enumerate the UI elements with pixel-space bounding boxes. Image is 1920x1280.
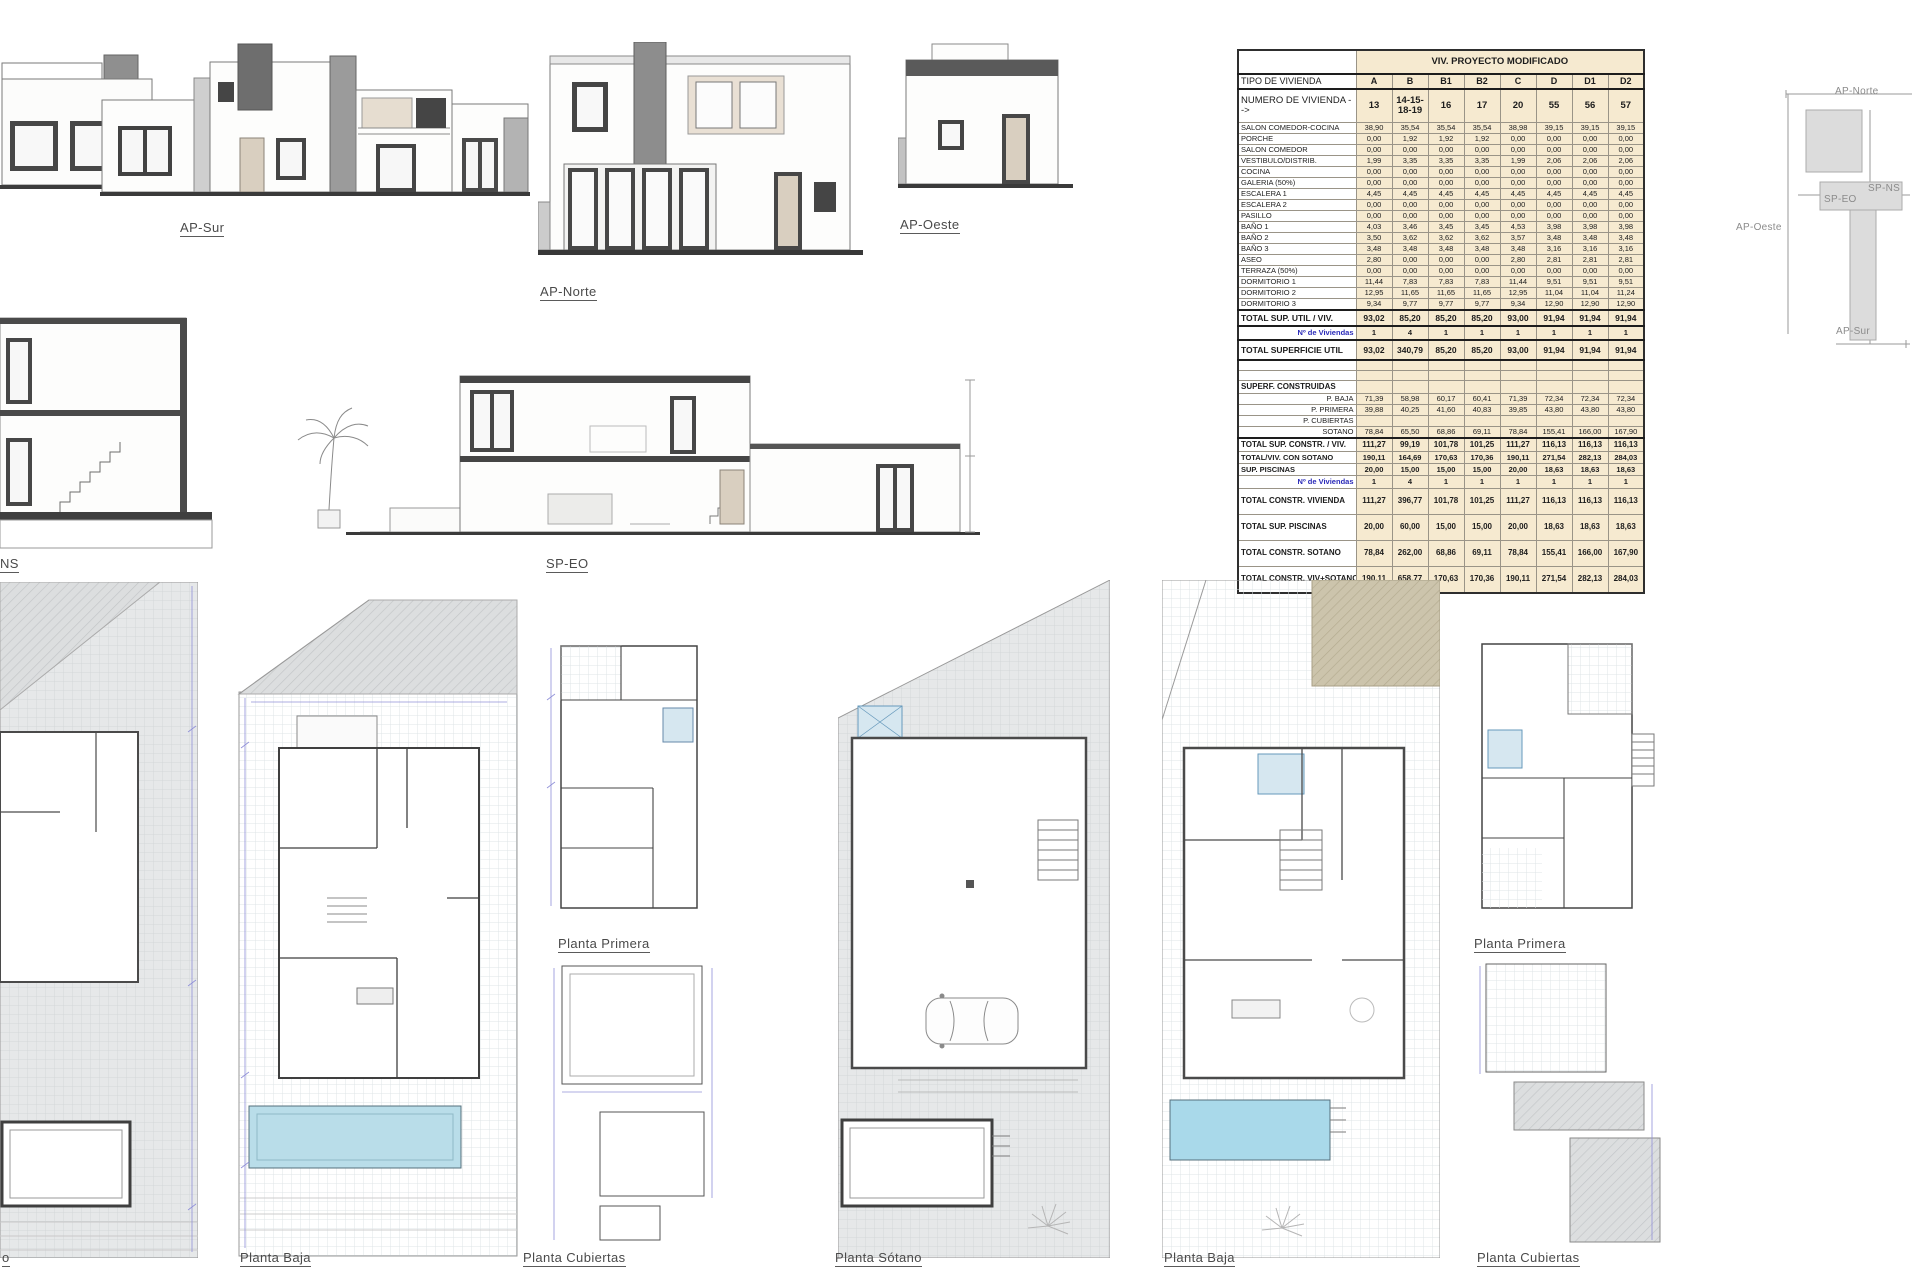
- ap-oeste-elevation-drawing: [898, 42, 1073, 214]
- table-cell: [1356, 360, 1392, 371]
- construida-value: 60,17: [1428, 394, 1464, 405]
- table-row: P. CUBIERTAS: [1238, 416, 1644, 427]
- n-viviendas-value: 1: [1500, 476, 1536, 489]
- construida-value: 72,34: [1536, 394, 1572, 405]
- n-viviendas-value: 4: [1392, 326, 1428, 340]
- table-cell: [1428, 360, 1464, 371]
- total-viv-con-sotano-value: 190,11: [1356, 452, 1392, 464]
- table-row: VIV. PROYECTO MODIFICADO: [1238, 50, 1644, 74]
- area-value: 2,06: [1536, 156, 1572, 167]
- area-value: 2,81: [1572, 255, 1608, 266]
- grand-total-value: 166,00: [1572, 541, 1608, 567]
- area-value: 11,65: [1428, 288, 1464, 299]
- area-value: 0,00: [1392, 145, 1428, 156]
- area-value: 0,00: [1572, 200, 1608, 211]
- construida-value: 40,25: [1392, 405, 1428, 416]
- area-value: 3,48: [1356, 244, 1392, 255]
- sp-ns-section-drawing: [0, 298, 232, 560]
- area-value: 3,48: [1464, 244, 1500, 255]
- construida-row-label: P. PRIMERA: [1238, 405, 1356, 416]
- room-label: DORMITORIO 2: [1238, 288, 1356, 299]
- planta-sotano-right-drawing: [838, 580, 1110, 1258]
- ap-sur-elevation-drawing: [100, 42, 530, 204]
- grand-total-value: 20,00: [1356, 515, 1392, 541]
- table-row: TOTAL SUP. UTIL / VIV.93,0285,2085,2085,…: [1238, 310, 1644, 326]
- grand-total-value: 262,00: [1392, 541, 1428, 567]
- construida-value: [1464, 416, 1500, 427]
- numero-cell: 13: [1356, 89, 1392, 123]
- area-value: 0,00: [1356, 134, 1392, 145]
- area-value: 0,00: [1608, 134, 1644, 145]
- construida-value: 78,84: [1356, 427, 1392, 439]
- total-util-viv-value: 91,94: [1608, 310, 1644, 326]
- grand-total-value: 282,13: [1572, 567, 1608, 594]
- total-superficie-util-value: 85,20: [1428, 340, 1464, 360]
- area-value: 3,48: [1428, 244, 1464, 255]
- planta-sotano-right-label: Planta Sótano: [835, 1250, 922, 1267]
- grand-total-value: 116,13: [1608, 489, 1644, 515]
- area-value: 7,83: [1464, 277, 1500, 288]
- table-row: SALON COMEDOR0,000,000,000,000,000,000,0…: [1238, 145, 1644, 156]
- area-value: 3,48: [1608, 233, 1644, 244]
- tipo-cell: C: [1500, 74, 1536, 89]
- grand-total-value: 20,00: [1500, 515, 1536, 541]
- area-value: 12,90: [1608, 299, 1644, 311]
- table-row: [1238, 371, 1644, 381]
- area-value: 11,44: [1356, 277, 1392, 288]
- construida-row-label: P. CUBIERTAS: [1238, 416, 1356, 427]
- table-cell: [1356, 371, 1392, 381]
- area-value: 2,81: [1608, 255, 1644, 266]
- grand-total-value: 116,13: [1536, 489, 1572, 515]
- area-value: 11,04: [1572, 288, 1608, 299]
- planta-cubiertas-right-drawing: [1478, 962, 1666, 1246]
- grand-total-value: 60,00: [1392, 515, 1428, 541]
- area-value: 9,51: [1572, 277, 1608, 288]
- construida-value: 166,00: [1572, 427, 1608, 439]
- area-value: 2,06: [1608, 156, 1644, 167]
- construida-value: 43,80: [1536, 405, 1572, 416]
- table-cell: [1608, 371, 1644, 381]
- area-value: 2,80: [1500, 255, 1536, 266]
- room-label: SALON COMEDOR-COCINA: [1238, 123, 1356, 134]
- tipo-cell: B: [1392, 74, 1428, 89]
- construida-value: [1500, 416, 1536, 427]
- total-constr-viv-value: 111,27: [1500, 438, 1536, 452]
- ap-sur-label: AP-Sur: [180, 220, 224, 237]
- table-row: SOTANO78,8465,5068,8669,1178,84155,41166…: [1238, 427, 1644, 439]
- n-viviendas-value: 1: [1428, 326, 1464, 340]
- numero-cell: 57: [1608, 89, 1644, 123]
- area-value: 2,81: [1536, 255, 1572, 266]
- table-row: VESTIBULO/DISTRIB.1,993,353,353,351,992,…: [1238, 156, 1644, 167]
- table-cell: [1464, 371, 1500, 381]
- table-cell: [1608, 381, 1644, 394]
- table-cell: [1464, 381, 1500, 394]
- area-value: 9,77: [1464, 299, 1500, 311]
- planta-cubiertas-left-drawing: [548, 962, 726, 1246]
- sup-piscinas-value: 15,00: [1428, 464, 1464, 476]
- key-sp-ns-label: SP-NS: [1868, 183, 1900, 194]
- construida-value: 71,39: [1356, 394, 1392, 405]
- area-value: 3,50: [1356, 233, 1392, 244]
- total-superficie-util-value: 93,02: [1356, 340, 1392, 360]
- sp-eo-label: SP-EO: [546, 556, 588, 573]
- room-label: ESCALERA 2: [1238, 200, 1356, 211]
- table-row: DORMITORIO 39,349,779,779,779,3412,9012,…: [1238, 299, 1644, 311]
- grand-total-label: TOTAL CONSTR. VIVIENDA: [1238, 489, 1356, 515]
- total-superficie-util-value: 93,00: [1500, 340, 1536, 360]
- room-label: BAÑO 2: [1238, 233, 1356, 244]
- construida-value: [1356, 416, 1392, 427]
- tipo-vivienda-label: TIPO DE VIVIENDA: [1238, 74, 1356, 89]
- area-value: 0,00: [1392, 178, 1428, 189]
- area-value: 3,98: [1572, 222, 1608, 233]
- total-constr-viv-value: 116,13: [1536, 438, 1572, 452]
- construida-value: 41,60: [1428, 405, 1464, 416]
- n-viviendas-value: 1: [1464, 476, 1500, 489]
- room-label: SALON COMEDOR: [1238, 145, 1356, 156]
- area-value: 12,90: [1572, 299, 1608, 311]
- table-cell: [1536, 360, 1572, 371]
- area-value: 0,00: [1464, 167, 1500, 178]
- room-label: COCINA: [1238, 167, 1356, 178]
- grand-total-value: 78,84: [1500, 541, 1536, 567]
- area-value: 3,57: [1500, 233, 1536, 244]
- area-value: 0,00: [1464, 178, 1500, 189]
- area-value: 0,00: [1392, 266, 1428, 277]
- sup-piscinas-value: 18,63: [1608, 464, 1644, 476]
- table-row: PASILLO0,000,000,000,000,000,000,000,00: [1238, 211, 1644, 222]
- area-value: 9,34: [1500, 299, 1536, 311]
- grand-total-value: 170,36: [1464, 567, 1500, 594]
- total-constr-viv-value: 116,13: [1608, 438, 1644, 452]
- area-value: 4,45: [1428, 189, 1464, 200]
- area-value: 9,34: [1356, 299, 1392, 311]
- room-label: DORMITORIO 3: [1238, 299, 1356, 311]
- viv-proyecto-modificado-table: VIV. PROYECTO MODIFICADOTIPO DE VIVIENDA…: [1237, 49, 1645, 594]
- area-value: 0,00: [1464, 200, 1500, 211]
- planta-baja-right-label: Planta Baja: [1164, 1250, 1235, 1267]
- area-value: 3,48: [1572, 233, 1608, 244]
- sup-piscinas-value: 15,00: [1392, 464, 1428, 476]
- area-value: 0,00: [1608, 145, 1644, 156]
- area-value: 0,00: [1356, 266, 1392, 277]
- construida-value: 58,98: [1392, 394, 1428, 405]
- table-row: GALERIA (50%)0,000,000,000,000,000,000,0…: [1238, 178, 1644, 189]
- total-util-viv-value: 85,20: [1392, 310, 1428, 326]
- area-value: 0,00: [1536, 134, 1572, 145]
- total-superficie-util-value: 91,94: [1572, 340, 1608, 360]
- grand-total-value: 18,63: [1608, 515, 1644, 541]
- key-ap-sur-label: AP-Sur: [1836, 326, 1870, 337]
- grand-total-value: 155,41: [1536, 541, 1572, 567]
- tipo-cell: D: [1536, 74, 1572, 89]
- area-value: 38,98: [1500, 123, 1536, 134]
- construida-value: 65,50: [1392, 427, 1428, 439]
- table-row: TOTAL SUP. PISCINAS20,0060,0015,0015,002…: [1238, 515, 1644, 541]
- table-cell: [1428, 371, 1464, 381]
- ap-norte-elevation-drawing: [538, 42, 863, 282]
- area-value: 9,51: [1536, 277, 1572, 288]
- table-row: TOTAL SUP. CONSTR. / VIV.111,2799,19101,…: [1238, 438, 1644, 452]
- area-value: 0,00: [1572, 145, 1608, 156]
- area-value: 0,00: [1428, 211, 1464, 222]
- construida-value: 60,41: [1464, 394, 1500, 405]
- area-value: 12,90: [1536, 299, 1572, 311]
- planta-baja-left-label: Planta Baja: [240, 1250, 311, 1267]
- tipo-cell: A: [1356, 74, 1392, 89]
- area-value: 3,46: [1392, 222, 1428, 233]
- total-util-viv-value: 91,94: [1572, 310, 1608, 326]
- grand-total-value: 167,90: [1608, 541, 1644, 567]
- construida-value: 39,85: [1500, 405, 1536, 416]
- table-cell: [1608, 360, 1644, 371]
- area-value: 0,00: [1428, 266, 1464, 277]
- construida-value: 68,86: [1428, 427, 1464, 439]
- area-value: 0,00: [1500, 145, 1536, 156]
- plan-sotano-left-partial-drawing: [0, 582, 198, 1258]
- area-value: 39,15: [1608, 123, 1644, 134]
- total-viv-con-sotano-label: TOTAL/VIV. CON SOTANO: [1238, 452, 1356, 464]
- construida-row-label: SOTANO: [1238, 427, 1356, 439]
- total-superficie-util-value: 91,94: [1608, 340, 1644, 360]
- table-cell: [1356, 381, 1392, 394]
- ap-oeste-label: AP-Oeste: [900, 217, 960, 234]
- area-value: 3,48: [1392, 244, 1428, 255]
- area-value: 38,90: [1356, 123, 1392, 134]
- n-viviendas-value: 1: [1356, 326, 1392, 340]
- table-row: TIPO DE VIVIENDAABB1B2CDD1D2: [1238, 74, 1644, 89]
- table-row: ESCALERA 20,000,000,000,000,000,000,000,…: [1238, 200, 1644, 211]
- planta-primera-right-drawing: [1472, 638, 1660, 933]
- construida-value: 39,88: [1356, 405, 1392, 416]
- numero-cell: 14-15-18-19: [1392, 89, 1428, 123]
- area-value: 0,00: [1572, 266, 1608, 277]
- construida-value: 40,83: [1464, 405, 1500, 416]
- area-value: 0,00: [1572, 167, 1608, 178]
- area-value: 35,54: [1392, 123, 1428, 134]
- area-value: 0,00: [1392, 167, 1428, 178]
- area-value: 0,00: [1464, 211, 1500, 222]
- area-value: 4,45: [1392, 189, 1428, 200]
- sup-piscinas-value: 20,00: [1500, 464, 1536, 476]
- table-cell: [1238, 360, 1356, 371]
- tipo-cell: B2: [1464, 74, 1500, 89]
- grand-total-value: 78,84: [1356, 541, 1392, 567]
- total-constr-viv-value: 101,78: [1428, 438, 1464, 452]
- n-viviendas-value: 1: [1464, 326, 1500, 340]
- key-sp-eo-label: SP-EO: [1824, 194, 1857, 205]
- grand-total-value: 284,03: [1608, 567, 1644, 594]
- area-value: 0,00: [1356, 167, 1392, 178]
- grand-total-value: 111,27: [1500, 489, 1536, 515]
- room-label: PASILLO: [1238, 211, 1356, 222]
- area-value: 11,24: [1608, 288, 1644, 299]
- sup-piscinas-value: 20,00: [1356, 464, 1392, 476]
- area-value: 4,45: [1536, 189, 1572, 200]
- table-row: ASEO2,800,000,000,002,802,812,812,81: [1238, 255, 1644, 266]
- area-value: 0,00: [1536, 200, 1572, 211]
- planta-primera-left-label: Planta Primera: [558, 936, 650, 953]
- area-value: 9,51: [1608, 277, 1644, 288]
- grand-total-value: 69,11: [1464, 541, 1500, 567]
- superf-construidas-label: SUPERF. CONSTRUIDAS: [1238, 381, 1356, 394]
- table-row: SUPERF. CONSTRUIDAS: [1238, 381, 1644, 394]
- table-corner: [1238, 50, 1356, 74]
- area-value: 9,77: [1392, 299, 1428, 311]
- area-value: 0,00: [1464, 266, 1500, 277]
- planta-cubiertas-left-label: Planta Cubiertas: [523, 1250, 626, 1267]
- n-viviendas-value: 1: [1536, 326, 1572, 340]
- area-value: 2,06: [1572, 156, 1608, 167]
- table-cell: [1238, 371, 1356, 381]
- planta-cubiertas-right-label: Planta Cubiertas: [1477, 1250, 1580, 1267]
- grand-total-value: 190,11: [1500, 567, 1536, 594]
- planta-primera-left-drawing: [543, 638, 715, 933]
- area-value: 7,83: [1428, 277, 1464, 288]
- area-value: 0,00: [1464, 145, 1500, 156]
- room-label: VESTIBULO/DISTRIB.: [1238, 156, 1356, 167]
- area-value: 3,35: [1428, 156, 1464, 167]
- total-constr-viv-value: 116,13: [1572, 438, 1608, 452]
- sup-piscinas-value: 15,00: [1464, 464, 1500, 476]
- area-value: 3,45: [1464, 222, 1500, 233]
- area-value: 0,00: [1356, 145, 1392, 156]
- key-ap-oeste-label: AP-Oeste: [1736, 222, 1782, 233]
- area-value: 0,00: [1392, 200, 1428, 211]
- total-superficie-util-value: 85,20: [1464, 340, 1500, 360]
- numero-cell: 16: [1428, 89, 1464, 123]
- table-row: BAÑO 14,033,463,453,454,533,983,983,98: [1238, 222, 1644, 233]
- table-title: VIV. PROYECTO MODIFICADO: [1356, 50, 1644, 74]
- table-row: BAÑO 23,503,623,623,623,573,483,483,48: [1238, 233, 1644, 244]
- table-row: BAÑO 33,483,483,483,483,483,163,163,16: [1238, 244, 1644, 255]
- table-row: TOTAL SUPERFICIE UTIL93,02340,7985,2085,…: [1238, 340, 1644, 360]
- grand-total-label: TOTAL SUP. PISCINAS: [1238, 515, 1356, 541]
- area-value: 3,45: [1428, 222, 1464, 233]
- area-value: 35,54: [1464, 123, 1500, 134]
- grand-total-label: TOTAL CONSTR. SOTANO: [1238, 541, 1356, 567]
- area-value: 0,00: [1392, 211, 1428, 222]
- grand-total-value: 271,54: [1536, 567, 1572, 594]
- area-value: 0,00: [1428, 200, 1464, 211]
- tipo-cell: D2: [1608, 74, 1644, 89]
- room-label: ESCALERA 1: [1238, 189, 1356, 200]
- total-viv-con-sotano-value: 190,11: [1500, 452, 1536, 464]
- table-row: DORMITORIO 111,447,837,837,8311,449,519,…: [1238, 277, 1644, 288]
- area-value: 4,53: [1500, 222, 1536, 233]
- room-label: DORMITORIO 1: [1238, 277, 1356, 288]
- grand-total-value: 111,27: [1356, 489, 1392, 515]
- area-value: 0,00: [1428, 167, 1464, 178]
- area-value: 35,54: [1428, 123, 1464, 134]
- table-cell: [1572, 360, 1608, 371]
- area-value: 0,00: [1572, 134, 1608, 145]
- table-row: ESCALERA 14,454,454,454,454,454,454,454,…: [1238, 189, 1644, 200]
- table-row: P. PRIMERA39,8840,2541,6040,8339,8543,80…: [1238, 405, 1644, 416]
- area-value: 4,45: [1356, 189, 1392, 200]
- area-value: 1,92: [1428, 134, 1464, 145]
- n-viviendas-value: 1: [1608, 476, 1644, 489]
- table-row: DORMITORIO 212,9511,6511,6511,6512,9511,…: [1238, 288, 1644, 299]
- total-viv-con-sotano-value: 284,03: [1608, 452, 1644, 464]
- grand-total-value: 101,78: [1428, 489, 1464, 515]
- area-value: 0,00: [1356, 211, 1392, 222]
- area-value: 0,00: [1608, 211, 1644, 222]
- area-value: 0,00: [1428, 255, 1464, 266]
- table-row: SALON COMEDOR-COCINA38,9035,5435,5435,54…: [1238, 123, 1644, 134]
- area-value: 3,16: [1608, 244, 1644, 255]
- construida-value: 71,39: [1500, 394, 1536, 405]
- n-viviendas-value: 1: [1572, 476, 1608, 489]
- total-util-viv-value: 93,02: [1356, 310, 1392, 326]
- total-superficie-util-value: 340,79: [1392, 340, 1428, 360]
- construida-value: 72,34: [1572, 394, 1608, 405]
- grand-total-value: 15,00: [1428, 515, 1464, 541]
- area-value: 3,62: [1392, 233, 1428, 244]
- table-cell: [1500, 360, 1536, 371]
- area-value: 3,62: [1428, 233, 1464, 244]
- area-value: 12,95: [1500, 288, 1536, 299]
- area-value: 1,92: [1392, 134, 1428, 145]
- area-value: 0,00: [1464, 255, 1500, 266]
- table-row: COCINA0,000,000,000,000,000,000,000,00: [1238, 167, 1644, 178]
- table-cell: [1428, 381, 1464, 394]
- sup-piscinas-value: 18,63: [1536, 464, 1572, 476]
- area-value: 3,48: [1500, 244, 1536, 255]
- area-value: 0,00: [1356, 178, 1392, 189]
- planta-primera-right-label: Planta Primera: [1474, 936, 1566, 953]
- area-value: 1,99: [1500, 156, 1536, 167]
- area-value: 0,00: [1500, 266, 1536, 277]
- table-row: TOTAL CONSTR. SOTANO78,84262,0068,8669,1…: [1238, 541, 1644, 567]
- table-cell: [1572, 371, 1608, 381]
- tipo-cell: D1: [1572, 74, 1608, 89]
- construida-row-label: P. BAJA: [1238, 394, 1356, 405]
- key-plan-drawing: [1778, 82, 1914, 354]
- table-cell: [1392, 381, 1428, 394]
- area-value: 0,00: [1500, 167, 1536, 178]
- area-value: 0,00: [1572, 211, 1608, 222]
- n-viviendas-value: 1: [1356, 476, 1392, 489]
- area-value: 9,77: [1428, 299, 1464, 311]
- area-value: 4,45: [1500, 189, 1536, 200]
- construida-value: [1572, 416, 1608, 427]
- table-row: TOTAL/VIV. CON SOTANO190,11164,69170,631…: [1238, 452, 1644, 464]
- n-viviendas-value: 1: [1500, 326, 1536, 340]
- area-value: 4,03: [1356, 222, 1392, 233]
- numero-cell: 56: [1572, 89, 1608, 123]
- total-util-viv-value: 91,94: [1536, 310, 1572, 326]
- grand-total-value: 116,13: [1572, 489, 1608, 515]
- construida-value: 43,80: [1608, 405, 1644, 416]
- table-cell: [1500, 371, 1536, 381]
- grand-total-value: 18,63: [1536, 515, 1572, 541]
- area-value: 11,04: [1536, 288, 1572, 299]
- table-row: Nº de Viviendas14111111: [1238, 476, 1644, 489]
- total-util-viv-value: 93,00: [1500, 310, 1536, 326]
- table-cell: [1536, 381, 1572, 394]
- planta-baja-right-drawing: [1162, 580, 1440, 1258]
- table-cell: [1500, 381, 1536, 394]
- total-viv-con-sotano-value: 164,69: [1392, 452, 1428, 464]
- area-value: 7,83: [1392, 277, 1428, 288]
- area-value: 4,45: [1608, 189, 1644, 200]
- area-value: 1,99: [1356, 156, 1392, 167]
- room-label: GALERIA (50%): [1238, 178, 1356, 189]
- construida-value: 167,90: [1608, 427, 1644, 439]
